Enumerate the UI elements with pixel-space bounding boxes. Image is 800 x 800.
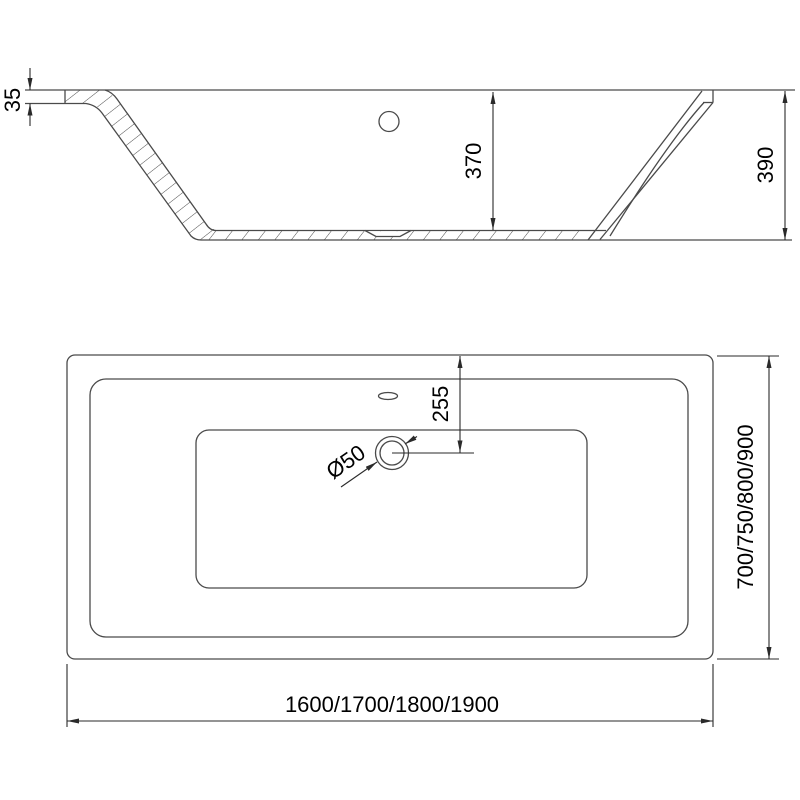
dim-rim-thickness: 35: [0, 68, 30, 126]
overflow-hole-plan: [379, 393, 398, 400]
dim-inner-depth: 370: [461, 92, 493, 230]
leader-line: [405, 437, 417, 445]
dim-drain-diameter: Ø50: [321, 437, 417, 488]
dimension-annotations: 35 370 390 255 Ø50 700/750/: [0, 68, 785, 727]
dim-label-overall-height: 390: [753, 147, 778, 184]
dim-overall-height: 390: [753, 91, 785, 240]
dim-label-length-options: 1600/1700/1800/1900: [285, 692, 499, 717]
bathtub-technical-drawing: 35 370 390 255 Ø50 700/750/: [0, 0, 800, 800]
dim-label-inner-depth: 370: [461, 143, 486, 180]
left-wall-hatch: [65, 90, 216, 240]
plan-outer-edge: [67, 355, 713, 659]
plan-view: [67, 355, 713, 659]
plan-rim-inner-edge: [90, 379, 688, 637]
plan-basin-edge: [196, 430, 587, 588]
right-wall-inner-curve: [610, 103, 704, 237]
right-wall-outer-line: [588, 91, 702, 240]
dim-length-options: 1600/1700/1800/1900: [67, 664, 713, 727]
dim-drain-offset: 255: [392, 356, 474, 453]
dim-label-rim-thickness: 35: [0, 88, 25, 112]
side-section-view: [25, 90, 795, 240]
dim-width-options: 700/750/800/900: [717, 356, 779, 659]
overflow-hole-side: [379, 112, 399, 132]
dim-label-width-options: 700/750/800/900: [733, 424, 758, 589]
dim-label-drain-offset: 255: [428, 386, 453, 423]
dim-label-drain-diameter: Ø50: [321, 440, 369, 484]
right-wall-rim-line: [600, 103, 713, 240]
